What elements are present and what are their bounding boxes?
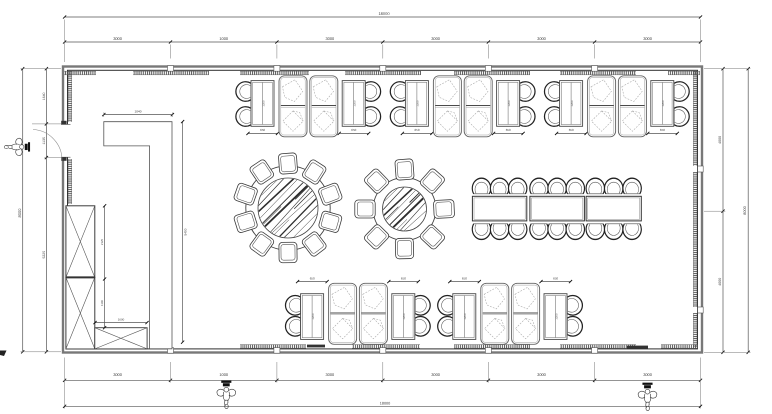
svg-text:650: 650 xyxy=(569,129,574,132)
svg-text:4000: 4000 xyxy=(718,278,722,286)
svg-text:1000: 1000 xyxy=(219,373,228,377)
svg-text:8000: 8000 xyxy=(743,206,747,215)
svg-text:8000: 8000 xyxy=(18,208,22,217)
svg-text:1000: 1000 xyxy=(219,37,228,41)
svg-text:650: 650 xyxy=(260,129,265,132)
svg-text:3000: 3000 xyxy=(643,37,652,41)
svg-text:650: 650 xyxy=(310,277,315,280)
svg-text:650: 650 xyxy=(553,277,558,280)
svg-text:18000: 18000 xyxy=(378,12,389,16)
svg-text:1040: 1040 xyxy=(135,110,142,113)
svg-text:1640: 1640 xyxy=(42,92,46,100)
svg-text:3000: 3000 xyxy=(113,37,122,41)
svg-text:2125: 2125 xyxy=(101,239,104,245)
svg-text:3000: 3000 xyxy=(326,373,335,377)
svg-text:5400: 5400 xyxy=(184,228,187,235)
svg-text:650: 650 xyxy=(351,129,356,132)
svg-text:3000: 3000 xyxy=(113,373,122,377)
svg-text:3000: 3000 xyxy=(431,37,440,41)
svg-text:650: 650 xyxy=(401,277,406,280)
svg-text:650: 650 xyxy=(462,277,467,280)
svg-text:3000: 3000 xyxy=(326,37,335,41)
svg-text:1600: 1600 xyxy=(118,318,125,321)
svg-text:650: 650 xyxy=(660,129,665,132)
svg-text:5225: 5225 xyxy=(42,251,46,259)
svg-text:1135: 1135 xyxy=(42,137,46,144)
svg-text:650: 650 xyxy=(414,129,419,132)
svg-text:650: 650 xyxy=(506,129,511,132)
svg-text:3000: 3000 xyxy=(643,373,652,377)
svg-text:4000: 4000 xyxy=(718,136,722,144)
svg-text:3000: 3000 xyxy=(537,37,546,41)
svg-text:1100: 1100 xyxy=(101,300,104,306)
svg-text:3000: 3000 xyxy=(537,373,546,377)
svg-text:3000: 3000 xyxy=(431,373,440,377)
svg-text:18000: 18000 xyxy=(380,401,391,405)
